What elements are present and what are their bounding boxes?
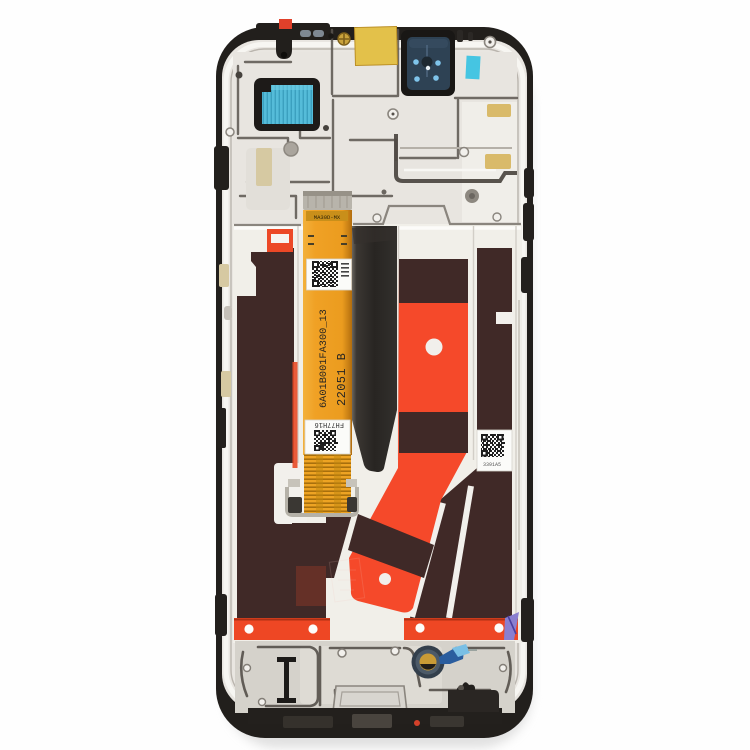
svg-text:FH77H16: FH77H16 [315, 420, 344, 428]
svg-text:MA30D-MX: MA30D-MX [314, 214, 341, 221]
svg-text:3391A5: 3391A5 [483, 462, 501, 468]
svg-text:22051 B: 22051 B [335, 353, 349, 406]
svg-text:6A01B001FA300_13: 6A01B001FA300_13 [318, 309, 330, 408]
